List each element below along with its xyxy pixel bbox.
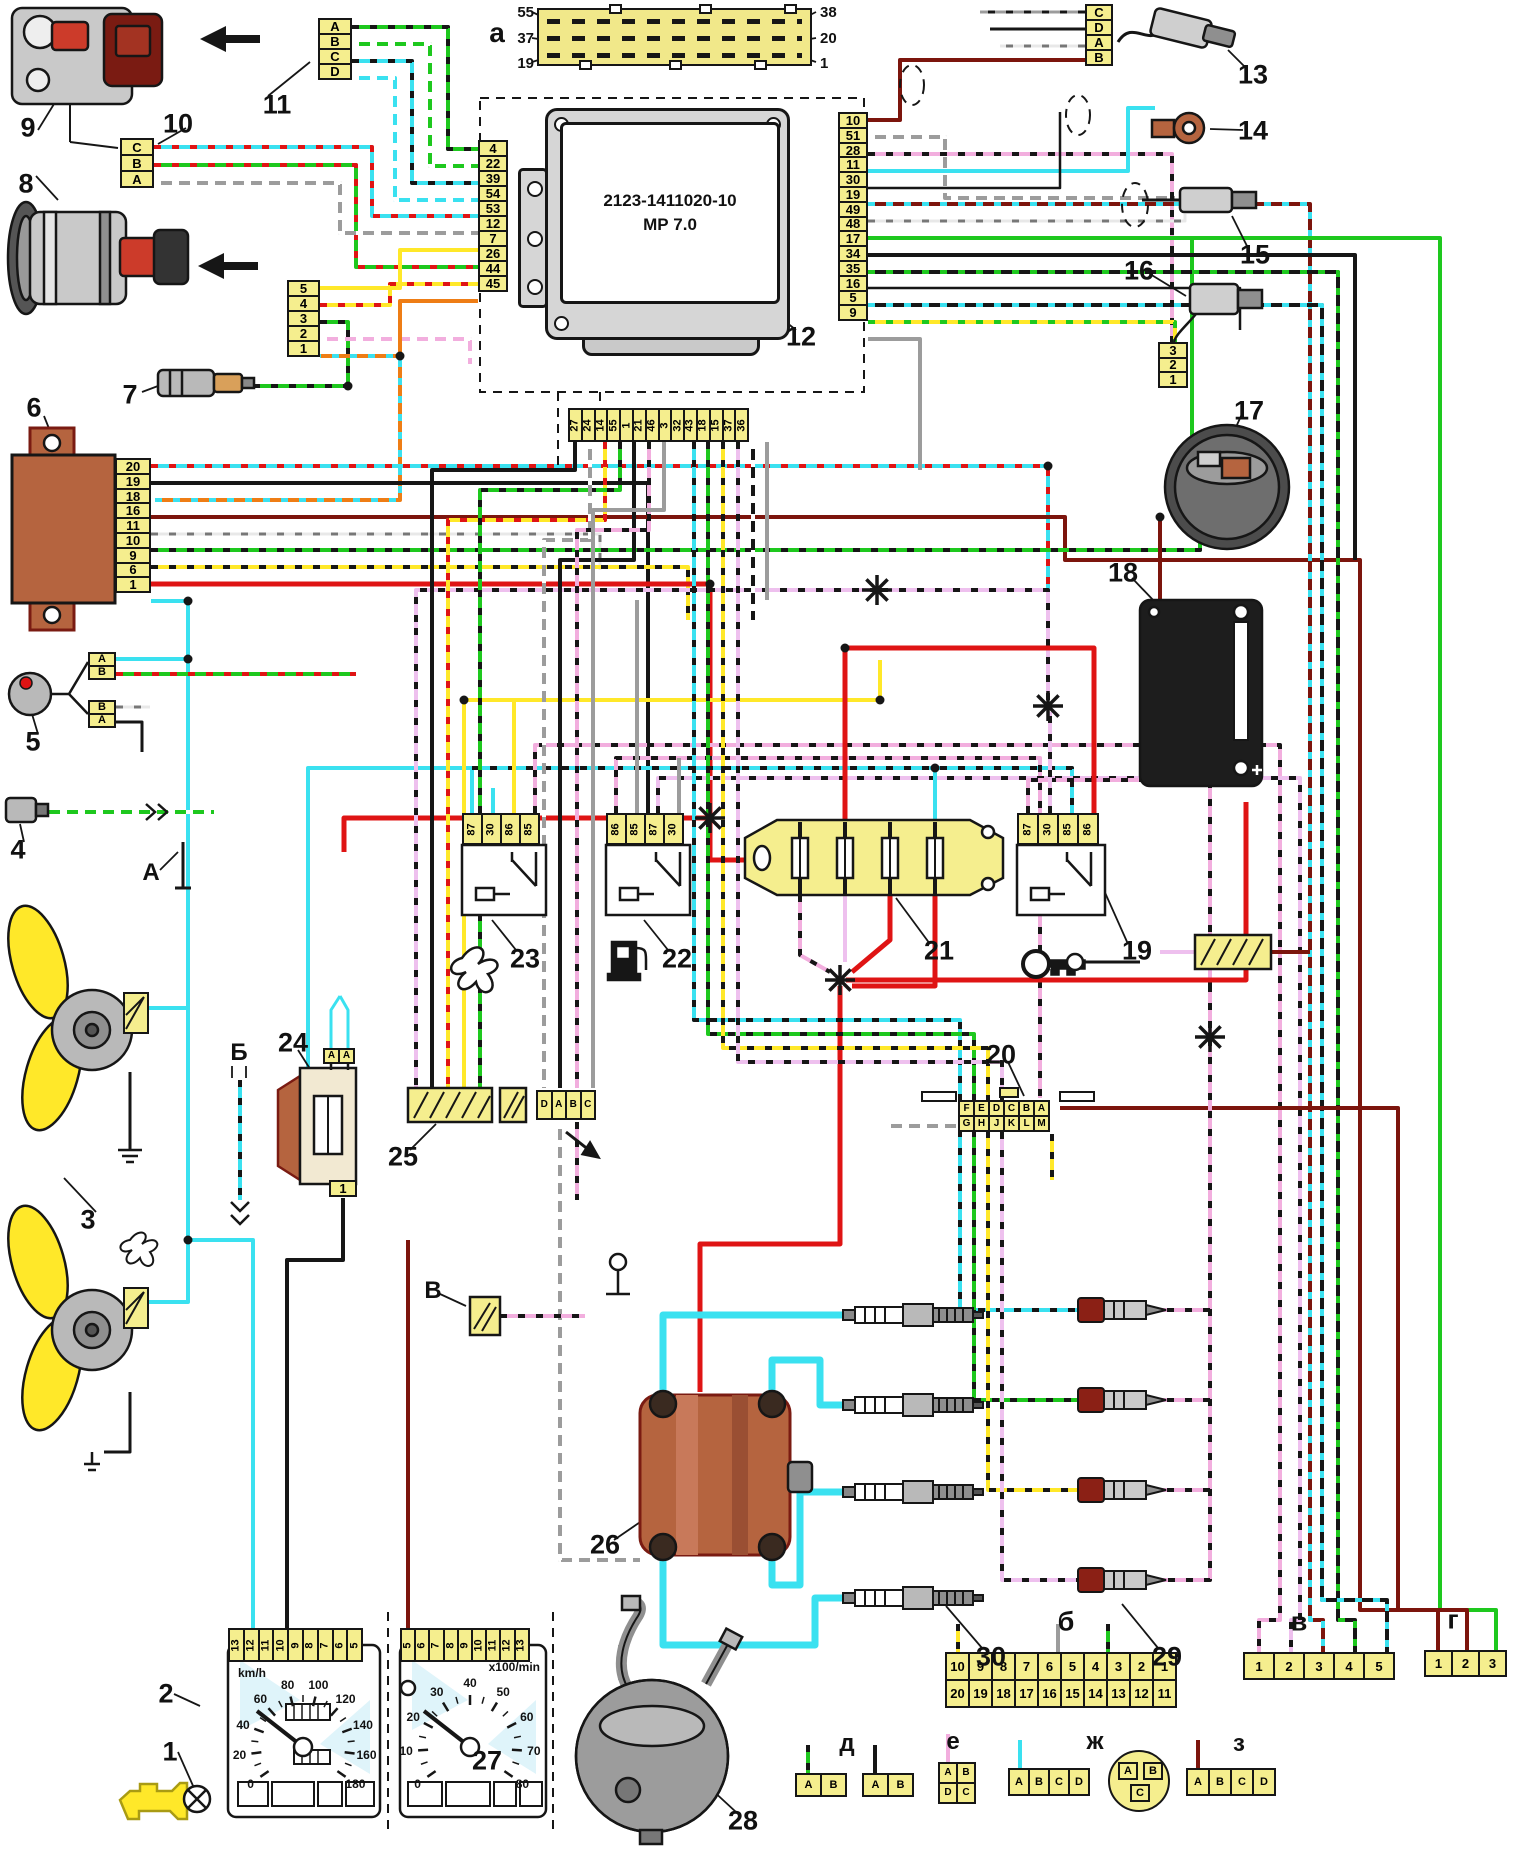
pin-cell-connBbot-17: 17 (1014, 1679, 1039, 1708)
wire (868, 339, 920, 470)
callout-c21: 21 (924, 936, 954, 967)
crank-sensor-15 (1142, 188, 1256, 212)
callout-c26: 26 (590, 1530, 620, 1561)
speedo-tick-label: 180 (345, 1777, 365, 1791)
wire (868, 154, 1172, 342)
callout-c2: 2 (158, 1679, 173, 1710)
callout-c24: 24 (278, 1028, 308, 1059)
pin-cell-connBbot-20: 20 (945, 1679, 970, 1708)
junction-dot (396, 352, 405, 361)
wire (560, 1122, 640, 1560)
check-engine-lamp-icon (120, 1783, 210, 1819)
pin-cell-connD2-A: A (862, 1773, 889, 1797)
callout-c6: 6 (26, 393, 41, 424)
pin-cell-connZh1-D: D (1068, 1768, 1090, 1796)
splice-junction-icon (695, 803, 725, 833)
pinblock-relay23: 87308685 (462, 813, 540, 845)
pinblock-conn16: 321 (1158, 342, 1188, 388)
pin-cell-relay19-87: 87 (1017, 813, 1039, 845)
pin-cell-connEbot-C: C (956, 1782, 976, 1804)
junction-dot (460, 696, 469, 705)
pin-cell-zh2-C: C (1130, 1784, 1150, 1802)
callout-c12: 12 (786, 322, 816, 353)
tach-unit-label: x100/min (452, 1660, 540, 1674)
pin-cell-maf8-1: 1 (287, 340, 320, 357)
speed-sensor (6, 798, 48, 822)
pin-cell-connV-4: 4 (1333, 1652, 1365, 1680)
wire (116, 722, 142, 752)
pin-cell-conn13-B: B (1085, 49, 1113, 66)
pin-cell-immo6-1: 1 (115, 576, 151, 593)
splice-junction-icon (862, 575, 892, 605)
pinblock-co5a: AB (88, 652, 116, 680)
conn-a-pin-20: 20 (820, 30, 837, 47)
wire (845, 648, 1094, 822)
speedo-tick-label: 0 (247, 1777, 254, 1791)
immobilizer-module (12, 428, 115, 630)
pin-cell-relay19-86: 86 (1077, 813, 1099, 845)
pin-cell-connG-3: 3 (1478, 1650, 1507, 1677)
pin-cell-connD2-B: B (887, 1773, 914, 1797)
callout-c10: 10 (163, 109, 193, 140)
callout-c1: 1 (162, 1737, 177, 1768)
wire (331, 996, 340, 1048)
pinblock-immo6: 201918161110961 (115, 458, 151, 593)
wire-dash (800, 895, 830, 972)
speedo-tick-label: 100 (308, 1678, 328, 1692)
ecu-bracket (518, 168, 548, 308)
wire (1060, 1108, 1467, 1650)
pin-cell-connBbot-13: 13 (1106, 1679, 1131, 1708)
callout-leader (174, 1694, 200, 1706)
fuel-pump-relay-body (606, 845, 690, 915)
pin-cell-connBtop-3: 3 (1106, 1652, 1131, 1681)
speedo-tick-label: 140 (353, 1718, 373, 1732)
tach-tick-label: 30 (430, 1685, 443, 1699)
ecu-module: 2123-1411020-10 МР 7.0 (545, 108, 790, 340)
callout-lz: з (1233, 1730, 1245, 1758)
pin-cell-zh2-A: A (1118, 1762, 1138, 1780)
junction-dot (184, 597, 193, 606)
cooling-fan-1 (0, 899, 132, 1137)
comb-connector-right (1195, 935, 1271, 969)
fuel-injectors (1078, 1298, 1166, 1592)
conn-a-pin-38: 38 (820, 4, 837, 21)
callout-lzh: ж (1086, 1728, 1103, 1756)
pinblock-connG: 123 (1424, 1650, 1507, 1677)
wire-dash (868, 154, 1172, 342)
pin-cell-connBbot-16: 16 (1037, 1679, 1062, 1708)
pin-cell-connBtop-6: 6 (1037, 1652, 1062, 1681)
main-relay-body (1017, 845, 1105, 915)
speedo-hub (294, 1738, 312, 1756)
pinblock-connD1: AB (795, 1773, 847, 1797)
comb-connector-25 (408, 1088, 492, 1122)
pin-cell-conn16-1: 1 (1158, 371, 1188, 388)
pin-cell-connD1-B: B (820, 1773, 847, 1797)
pin-cell-connD1-A: A (795, 1773, 822, 1797)
callout-c22: 22 (662, 944, 692, 975)
arrow-to-coil-icon (566, 1132, 598, 1157)
callout-c18: 18 (1108, 558, 1138, 589)
tach-tick-label: 10 (399, 1744, 412, 1758)
pin-cell-relay22-86: 86 (606, 813, 627, 845)
tach-tick-label: 40 (463, 1676, 476, 1690)
pinblock-conn24top: AA (323, 1048, 355, 1064)
wire (868, 112, 1060, 188)
fan-relay-icon (451, 947, 497, 992)
wire (151, 468, 1200, 550)
pin-row-dashes (547, 53, 802, 58)
wire-dash (151, 567, 688, 620)
pin-cell-zh2-B: B (1143, 1762, 1163, 1780)
pin-cell-ecu_bottom-36: 36 (734, 408, 749, 442)
callout-la: а (489, 17, 505, 49)
junction-dot (184, 655, 193, 664)
pin-cell-connEtop-B: B (956, 1762, 976, 1784)
wiring-diagram-page: 55 37 19 38 20 1 2123-1411020-10 МР 7.0 … (0, 0, 1523, 1868)
pin-cell-connBtop-10: 10 (945, 1652, 970, 1681)
wire-break-chevrons (146, 804, 249, 1224)
pin-cell-relay22-85: 85 (625, 813, 646, 845)
speedo-tick-label: 120 (336, 1692, 356, 1706)
fuel-pump-icon (608, 942, 646, 980)
callout-leader (160, 852, 178, 870)
pin-cell-conn20bot-M: M (1033, 1115, 1050, 1132)
arrow-left-top-icon (200, 26, 260, 52)
wire-dash (877, 590, 1048, 700)
callout-le: е (946, 1728, 959, 1756)
wire (663, 1553, 843, 1645)
conn-a-pin-55: 55 (508, 4, 534, 21)
callout-c11: 11 (263, 90, 292, 121)
wire (852, 895, 890, 972)
arrow-left-maf-icon (198, 253, 258, 279)
pin-cell-relay22-30: 30 (663, 813, 684, 845)
callout-c30: 30 (976, 1642, 1006, 1673)
pinblock-conn10: CBA (120, 138, 154, 188)
wire (593, 442, 664, 1088)
pinblock-cl2pins: 1312111098765 (228, 1628, 363, 1662)
callout-c14: 14 (1238, 116, 1268, 147)
speedo-tick (345, 1752, 355, 1753)
tach-tick-label: 20 (407, 1710, 420, 1724)
pinblock-conn11: ABCD (318, 18, 352, 80)
junction-dot (1044, 462, 1053, 471)
callout-leader (1150, 274, 1186, 296)
pinblock-relay22: 86858730 (606, 813, 684, 845)
callout-lb: б (1058, 1607, 1075, 1638)
tach-tick-label: 50 (497, 1685, 510, 1699)
ground-icon (84, 954, 1140, 1470)
conn-a-pin-19: 19 (508, 55, 534, 72)
harness-connector-a (537, 8, 812, 66)
pin-cell-connG-1: 1 (1424, 1650, 1453, 1677)
pin-cell-connEbot-D: D (938, 1782, 958, 1804)
wire-dash (708, 442, 1078, 1400)
wire-dash (560, 1122, 640, 1560)
wire (868, 214, 1185, 221)
callout-c3: 3 (80, 1205, 95, 1236)
wire (544, 442, 590, 1088)
callout-c19: 19 (1122, 936, 1152, 967)
speedo-tick-label: 60 (254, 1692, 267, 1706)
fuse-holder-24 (278, 1064, 356, 1184)
speedo-unit-label: km/h (238, 1666, 266, 1680)
fan-relay-body (462, 845, 546, 915)
tach-tick (418, 1750, 428, 1751)
fuel-pump-module (576, 1596, 742, 1844)
pin-cell-connBbot-19: 19 (968, 1679, 993, 1708)
pin-cell-ecu_left-45: 45 (478, 275, 508, 292)
pin-cell-conn24bot-1: 1 (329, 1180, 357, 1197)
callout-c9: 9 (20, 113, 35, 144)
speedo-tick-label: 160 (356, 1748, 376, 1762)
pinblock-cl27pins: 5678910111213 (400, 1628, 530, 1662)
pinblock-connV: 12345 (1243, 1652, 1395, 1680)
pinblock-relay19: 87308586 (1017, 813, 1099, 845)
pinblock-conn13: CDAB (1085, 4, 1113, 66)
maf-sensor (8, 202, 188, 314)
pinblock-connZh1: ABCD (1008, 1768, 1090, 1796)
pinblock-co5b: BA (88, 700, 116, 728)
callout-c15: 15 (1240, 240, 1270, 271)
pin-cell-connBtop-4: 4 (1083, 1652, 1108, 1681)
pinblock-connZh2: A B C (1108, 1750, 1170, 1812)
pin-cell-connZh1-A: A (1008, 1768, 1030, 1796)
pin-cell-ecu_right-9: 9 (838, 304, 868, 321)
fan-icon (120, 1232, 157, 1265)
callout-c25: 25 (388, 1142, 418, 1173)
pinblock-ecu_bottom: 27241455121463324318153736 (568, 408, 749, 442)
pin-cell-relay23-86: 86 (500, 813, 521, 845)
callout-leader (142, 386, 158, 392)
pinblock-ecu_left: 422395453127264445 (478, 140, 508, 292)
wire (151, 567, 688, 620)
callout-c4: 4 (10, 835, 25, 866)
pin-cell-co5b-A: A (88, 713, 116, 728)
pin-row-dashes (547, 19, 802, 24)
callout-leader (36, 176, 58, 200)
pin-cell-relay23-30: 30 (481, 813, 502, 845)
callout-c28: 28 (728, 1806, 758, 1837)
pin-cell-connZ-C: C (1230, 1768, 1254, 1796)
pin-cell-relay19-30: 30 (1037, 813, 1059, 845)
wire (708, 442, 1078, 1400)
splice-junction-icon (1033, 691, 1063, 721)
pin-row-dashes (547, 36, 802, 41)
pin-cell-connG-2: 2 (1451, 1650, 1480, 1677)
callout-c7: 7 (122, 380, 137, 411)
wire (852, 895, 935, 986)
ring-terminal-14 (1152, 113, 1204, 143)
callout-uB: Б (230, 1039, 247, 1067)
speedo-tick-label: 40 (236, 1718, 249, 1732)
wire-dash (320, 339, 470, 364)
pin-cell-conn24top-A: A (338, 1048, 355, 1064)
junction-dot (841, 644, 850, 653)
pin-cell-connZh1-B: B (1028, 1768, 1050, 1796)
pinblock-conn20bot: GHJKLM (958, 1115, 1050, 1132)
wire (287, 1198, 343, 1628)
speedo-tick (251, 1752, 261, 1753)
pin-cell-connBtop-2: 2 (1129, 1652, 1154, 1681)
junction-dot (1156, 513, 1165, 522)
ecu-model: 2123-1411020-10 (603, 191, 736, 211)
pinblock-connZ: ABCD (1186, 1768, 1276, 1796)
pin-cell-connBbot-14: 14 (1083, 1679, 1108, 1708)
pinblock-ecu_right: 10512811301949481734351659 (838, 112, 868, 321)
tach-tick-label: 70 (527, 1744, 540, 1758)
pin-cell-dabc-C: C (580, 1090, 597, 1120)
wire (464, 660, 880, 700)
comb-connector-V (470, 1297, 500, 1335)
junction-dot (876, 696, 885, 705)
pinblock-connEbot: DC (938, 1782, 976, 1804)
speedo-tick-label: 80 (281, 1678, 294, 1692)
sensor-16 (1174, 284, 1262, 342)
comb-connector-small (500, 1088, 526, 1122)
callout-c23: 23 (510, 944, 540, 975)
ecu-version: МР 7.0 (643, 215, 697, 235)
callout-c29: 29 (1152, 1642, 1182, 1673)
wire (877, 590, 1048, 700)
pin-cell-co5a-B: B (88, 665, 116, 680)
wire (340, 996, 348, 1048)
callout-c27: 27 (472, 1746, 502, 1777)
oxygen-sensor (158, 370, 254, 396)
junction-dot (931, 764, 940, 773)
junction-dot (184, 1236, 193, 1245)
tach-tick (512, 1750, 522, 1751)
junction-dot (706, 580, 715, 589)
callout-c17: 17 (1234, 396, 1264, 427)
pin-cell-conn11-D: D (318, 63, 352, 80)
pinblock-conn24bot: 1 (329, 1180, 357, 1197)
ignition-coil (640, 1391, 812, 1560)
co-potentiometer (9, 662, 88, 715)
pin-cell-connBbot-11: 11 (1152, 1679, 1177, 1708)
callout-leader (440, 1294, 466, 1306)
pin-cell-connBbot-12: 12 (1129, 1679, 1154, 1708)
callout-uV: В (424, 1277, 441, 1305)
pinblock-connD2: AB (862, 1773, 914, 1797)
pin-cell-relay23-85: 85 (519, 813, 540, 845)
pin-cell-relay23-87: 87 (462, 813, 483, 845)
pin-cell-connZ-A: A (1186, 1768, 1210, 1796)
tach-tick-label: 0 (414, 1777, 421, 1791)
module-18 (1140, 600, 1262, 786)
junction-dot (344, 382, 353, 391)
wire (800, 895, 830, 972)
pin-cell-connV-3: 3 (1303, 1652, 1335, 1680)
pin-cell-connZh1-C: C (1048, 1768, 1070, 1796)
pin-cell-relay19-85: 85 (1057, 813, 1079, 845)
oxygen-sensor-13 (1118, 7, 1235, 48)
pin-cell-connV-5: 5 (1363, 1652, 1395, 1680)
fuel-level-sender-17 (1165, 425, 1289, 549)
pinblock-dabc: DABC (536, 1090, 596, 1120)
splice-junction-icon (1195, 1022, 1225, 1052)
wire (868, 60, 1085, 120)
pin-cell-connZ-B: B (1208, 1768, 1232, 1796)
tach-tick-label: 80 (516, 1777, 529, 1791)
callout-ld: д (839, 1730, 854, 1758)
pin-cell-relay22-87: 87 (644, 813, 665, 845)
pin-cell-connBtop-5: 5 (1060, 1652, 1085, 1681)
splice-junction-icon (825, 965, 855, 995)
pin-cell-cl2pins-5: 5 (346, 1628, 363, 1662)
tach-tick-label: 60 (520, 1710, 533, 1724)
pin-cell-connBbot-15: 15 (1060, 1679, 1085, 1708)
spark-plugs (843, 1304, 983, 1609)
callout-c16: 16 (1124, 256, 1154, 287)
pin-cell-cl27pins-13: 13 (514, 1628, 530, 1662)
wire (154, 183, 478, 233)
pin-cell-connV-1: 1 (1243, 1652, 1275, 1680)
callout-c20: 20 (986, 1040, 1016, 1071)
pin-cell-connZ-D: D (1252, 1768, 1276, 1796)
wire (147, 601, 188, 1008)
callout-lv: в (1291, 1607, 1308, 1638)
wire (868, 108, 1155, 171)
pinblock-connEtop: AB (938, 1762, 976, 1784)
wire (400, 301, 478, 356)
pin-cell-connBbot-18: 18 (991, 1679, 1016, 1708)
callout-c13: 13 (1238, 60, 1268, 91)
pinblock-maf8: 54321 (287, 280, 320, 357)
pin-cell-conn10-A: A (120, 170, 154, 188)
wire-dash (151, 468, 1200, 550)
conn-a-pin-1: 1 (820, 55, 828, 72)
speedo-minor-tick (251, 1741, 258, 1742)
speedo-minor-tick (348, 1741, 355, 1742)
callout-lg: г (1447, 1605, 1458, 1636)
wire (104, 1392, 130, 1452)
pin-cell-connEtop-A: A (938, 1762, 958, 1784)
pinblock-connBbot: 20191817161514131211 (945, 1679, 1177, 1708)
pin-cell-connV-2: 2 (1273, 1652, 1305, 1680)
wire (320, 339, 470, 364)
pin-cell-connBtop-7: 7 (1014, 1652, 1039, 1681)
speedo-tick-label: 20 (233, 1748, 246, 1762)
callout-uA: А (142, 859, 159, 887)
callout-c8: 8 (18, 169, 33, 200)
conn-a-pin-37: 37 (508, 30, 534, 47)
ecu-label-plate: 2123-1411020-10 МР 7.0 (560, 122, 780, 304)
fuse-box (745, 820, 1003, 895)
wire-dash (154, 183, 478, 233)
wire (188, 1240, 253, 1628)
callout-c5: 5 (25, 727, 40, 758)
cooling-fan-2 (0, 1199, 132, 1437)
